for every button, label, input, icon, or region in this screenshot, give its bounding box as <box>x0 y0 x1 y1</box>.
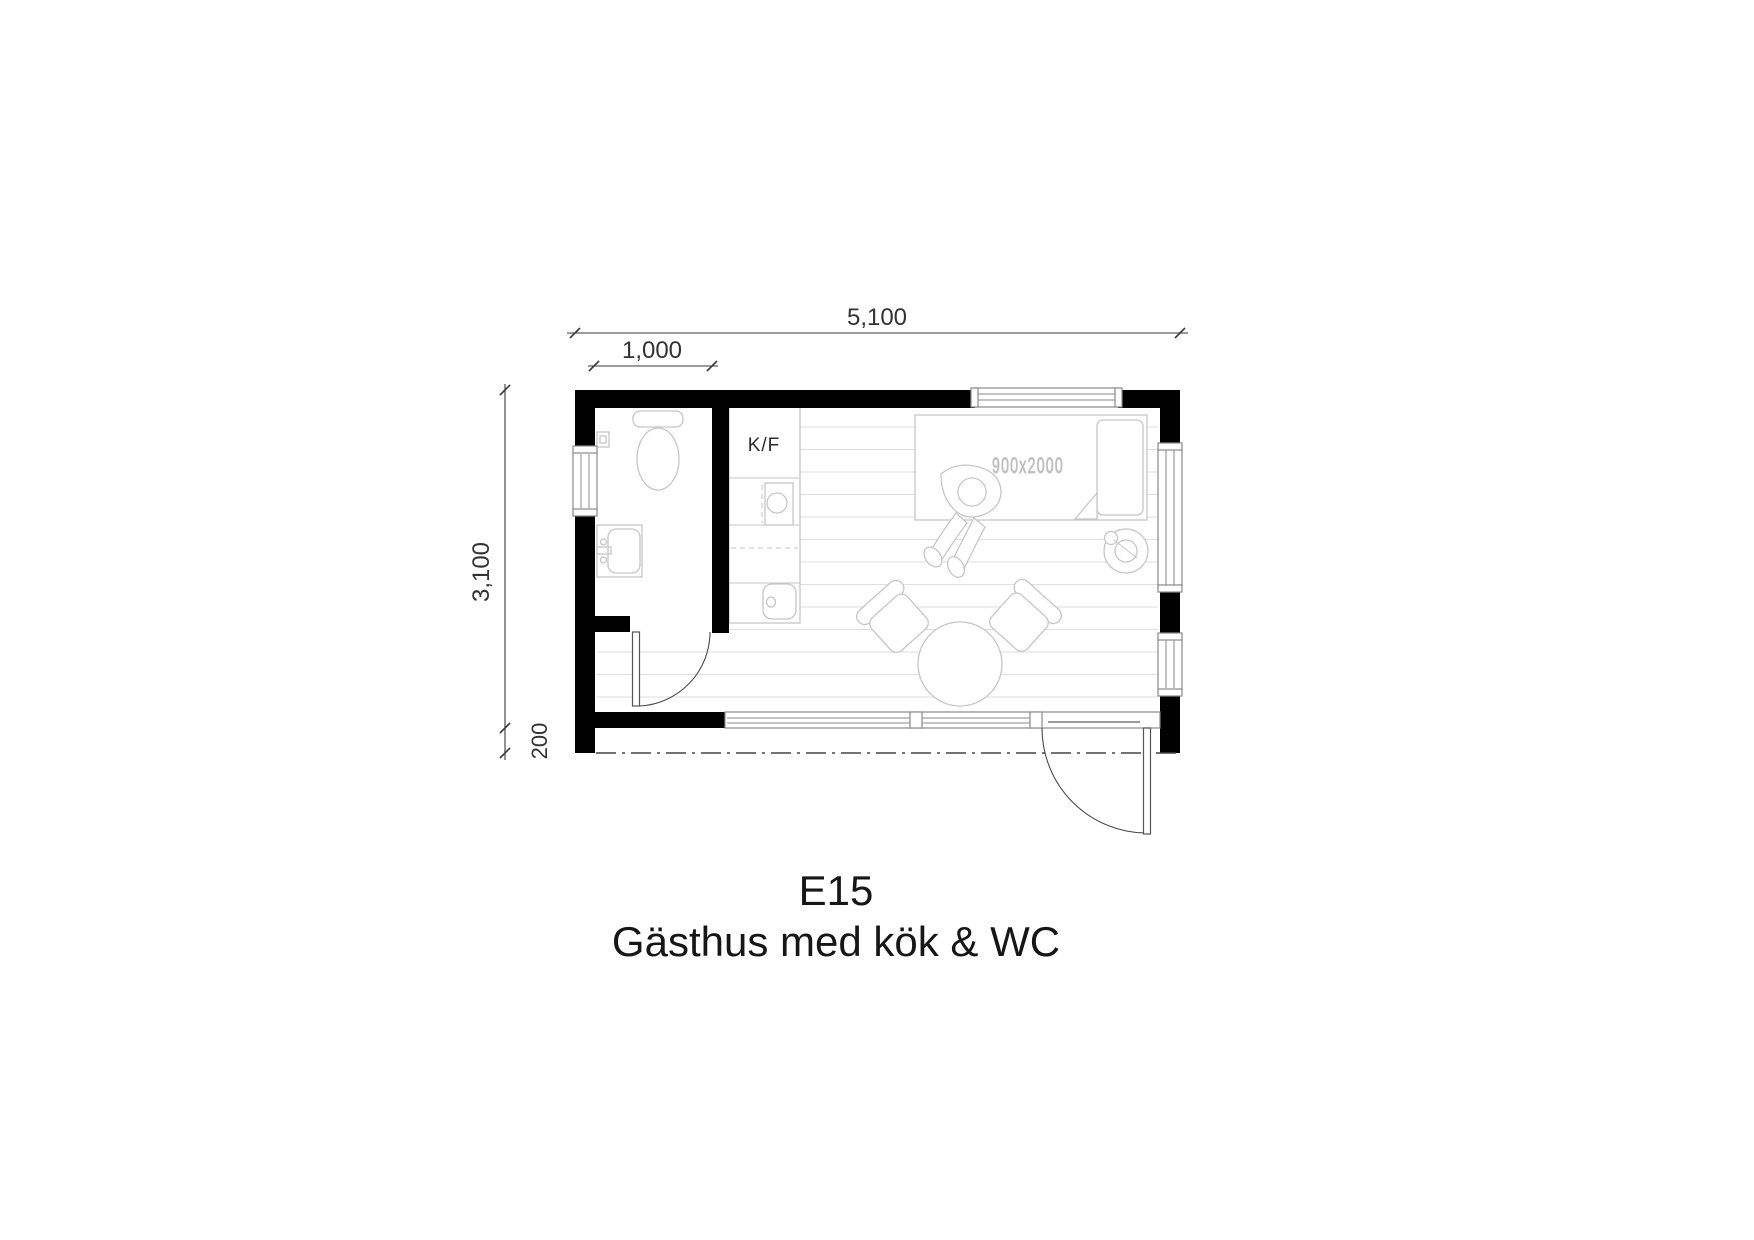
lamp-base <box>1105 532 1118 545</box>
entrance-door <box>1042 728 1151 834</box>
plan-code: E15 <box>799 867 874 914</box>
window-right-lower <box>1158 633 1182 696</box>
bed-pillow <box>1097 420 1143 515</box>
dimension-overall-width: 5,100 <box>567 304 1188 338</box>
window-left <box>573 446 597 516</box>
entrance-door-leaf <box>1144 728 1151 834</box>
dining-table <box>918 622 1002 706</box>
washbasin-counter <box>597 525 642 577</box>
washbasin-tap <box>597 547 611 554</box>
dimension-overall-depth: 3,100 <box>468 384 510 760</box>
svg-text:200: 200 <box>527 723 552 760</box>
fridge-freezer-label: K/F <box>748 435 781 456</box>
toilet-paper-holder <box>597 432 609 447</box>
window-right-upper <box>1158 443 1182 592</box>
bed-size-label: 900x2000 <box>992 453 1064 478</box>
washbasin <box>597 525 642 577</box>
floor-plan-drawing: 900x2000 K/F <box>0 0 1754 1240</box>
person-head <box>958 478 986 506</box>
toilet-tank <box>633 411 683 427</box>
bathroom-door-leaf <box>633 632 640 706</box>
glazing-mullion <box>1030 712 1042 728</box>
wall-right-upper <box>1160 390 1180 448</box>
wall-bathroom-stub <box>593 616 630 632</box>
bathroom-fixtures <box>597 411 683 577</box>
toilet-bowl <box>637 428 679 490</box>
terrace-glazing <box>725 712 1160 728</box>
wall-left-upper <box>575 390 595 452</box>
plan-title: Gästhus med kök & WC <box>612 918 1060 965</box>
wall-right-lower <box>1160 690 1180 753</box>
wall-bottom-left <box>575 712 725 728</box>
wall-bathroom-partition <box>712 407 729 633</box>
glazing-mullion <box>910 712 922 728</box>
svg-text:5,100: 5,100 <box>847 304 907 331</box>
wall-top-left <box>575 390 975 408</box>
floor-plan-page: 900x2000 K/F <box>0 0 1754 1240</box>
dimension-eave-offset: 200 <box>500 723 552 760</box>
toilet <box>633 411 683 490</box>
bathroom-door <box>633 632 711 706</box>
bathroom-door-swing <box>639 632 710 706</box>
dimension-bathroom-width: 1,000 <box>588 337 718 371</box>
wall-right-middle <box>1160 587 1180 638</box>
washbasin-knob <box>601 539 607 545</box>
washbasin-bowl <box>608 529 640 573</box>
entrance-door-swing <box>1042 728 1147 833</box>
window-top <box>971 388 1122 407</box>
svg-text:3,100: 3,100 <box>468 542 495 602</box>
floor-lamp <box>1104 529 1148 573</box>
svg-text:1,000: 1,000 <box>622 337 682 364</box>
washbasin-knob <box>601 557 607 563</box>
